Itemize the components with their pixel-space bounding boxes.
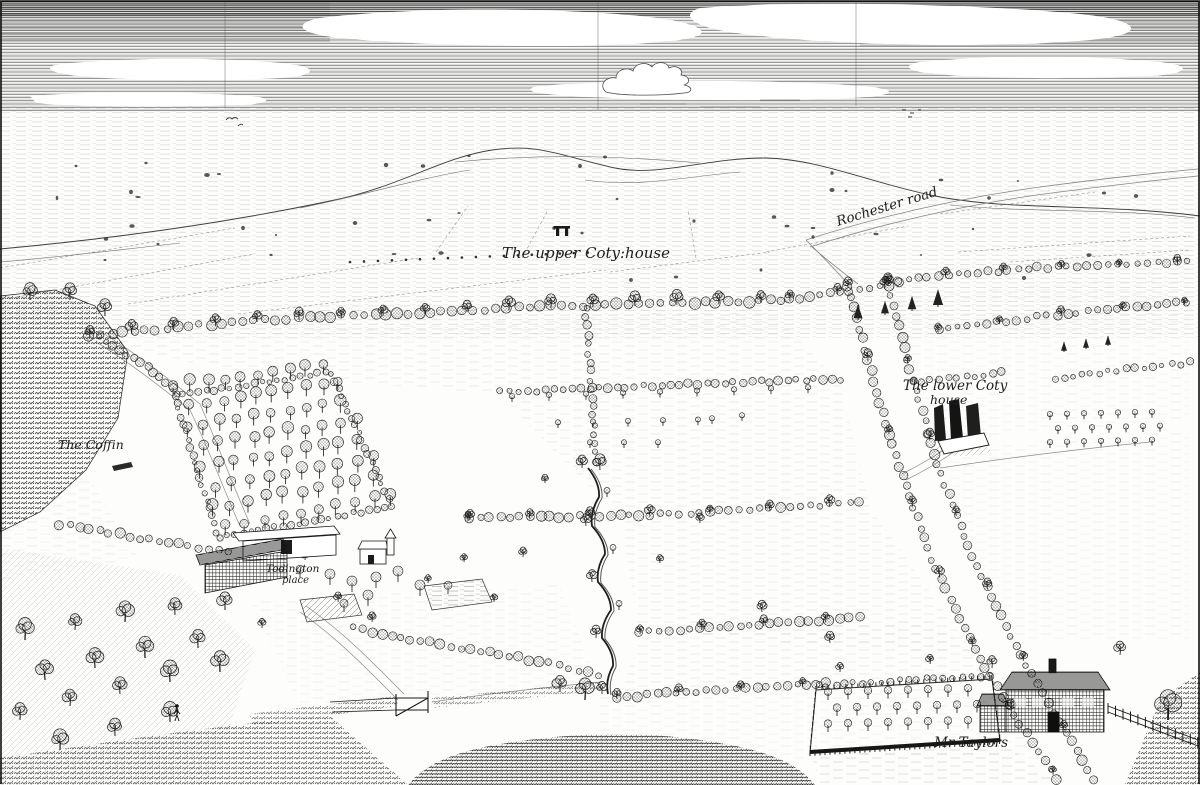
label-the-coffin: The Coffin bbox=[58, 437, 124, 452]
label-upper-coty: The upper Coty:house bbox=[502, 244, 670, 262]
turret-roof bbox=[385, 529, 396, 538]
label-todington-1: Todington bbox=[266, 563, 320, 575]
outbuilding-roof bbox=[977, 694, 1009, 706]
todington-place-farm bbox=[196, 526, 492, 622]
taylors-roof bbox=[1000, 672, 1110, 690]
engraving-page: The upper Coty:house Rochester road The … bbox=[0, 0, 1200, 785]
farmhouse-roof bbox=[358, 541, 388, 549]
sky-dark-corner-left bbox=[0, 0, 330, 42]
corner-thicket bbox=[1125, 672, 1200, 785]
label-lower-coty-2: house bbox=[930, 392, 967, 407]
taylors-door bbox=[1048, 712, 1059, 732]
outbuilding bbox=[980, 706, 1006, 732]
label-mr-taylors: Mr Taylors bbox=[933, 735, 1008, 751]
label-todington-2: place bbox=[282, 575, 309, 586]
coffin-stone bbox=[112, 462, 133, 471]
chimney bbox=[1049, 659, 1056, 673]
turret bbox=[387, 538, 394, 555]
prospect-engraving: The upper Coty:house Rochester road The … bbox=[0, 0, 1200, 785]
farmhouse-door bbox=[368, 555, 374, 564]
